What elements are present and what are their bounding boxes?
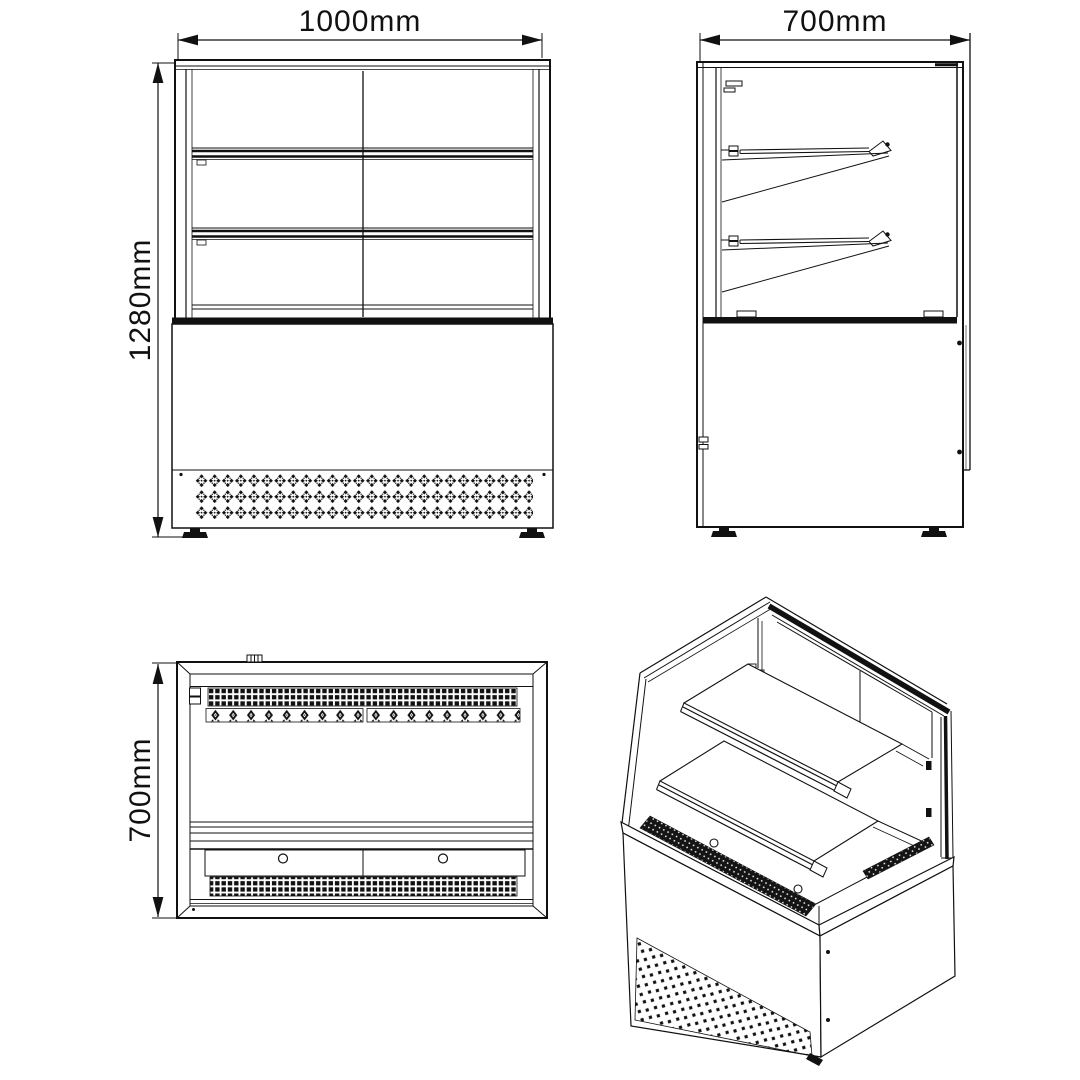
front-view-elevation: 1000mm 1280mm [124, 5, 553, 538]
top-tray [205, 850, 525, 876]
side-view-elevation: 700mm [697, 5, 970, 537]
front-height-label: 1280mm [124, 239, 157, 362]
front-counter-band [172, 318, 553, 325]
front-width-dimension: 1000mm [178, 5, 542, 61]
isometric-view [621, 597, 955, 1066]
top-mesh-strip-rear [208, 688, 517, 706]
top-diamond-row-left [206, 709, 363, 723]
display-case-drawing: 1000mm 1280mm [0, 0, 1080, 1080]
front-glass-section [175, 60, 550, 322]
iso-left-panel [622, 673, 646, 832]
top-depth-label: 700mm [124, 737, 157, 842]
iso-right-glass-frame [926, 711, 953, 859]
side-depth-label: 700mm [782, 5, 887, 38]
side-depth-dimension: 700mm [700, 5, 970, 61]
side-counter-band [703, 317, 957, 324]
front-base-section [172, 318, 553, 529]
front-width-label: 1000mm [299, 5, 422, 38]
side-cabinet [697, 62, 963, 527]
front-feet [182, 528, 545, 538]
top-mesh-strip-front [210, 877, 517, 896]
top-diamond-row-right [367, 709, 520, 723]
top-rear-vent [190, 687, 534, 723]
front-vent-grille [195, 473, 533, 521]
side-feet [711, 527, 947, 537]
technical-drawing-sheet: 1000mm 1280mm [0, 0, 1080, 1080]
top-plan-view: 700mm [124, 655, 547, 918]
